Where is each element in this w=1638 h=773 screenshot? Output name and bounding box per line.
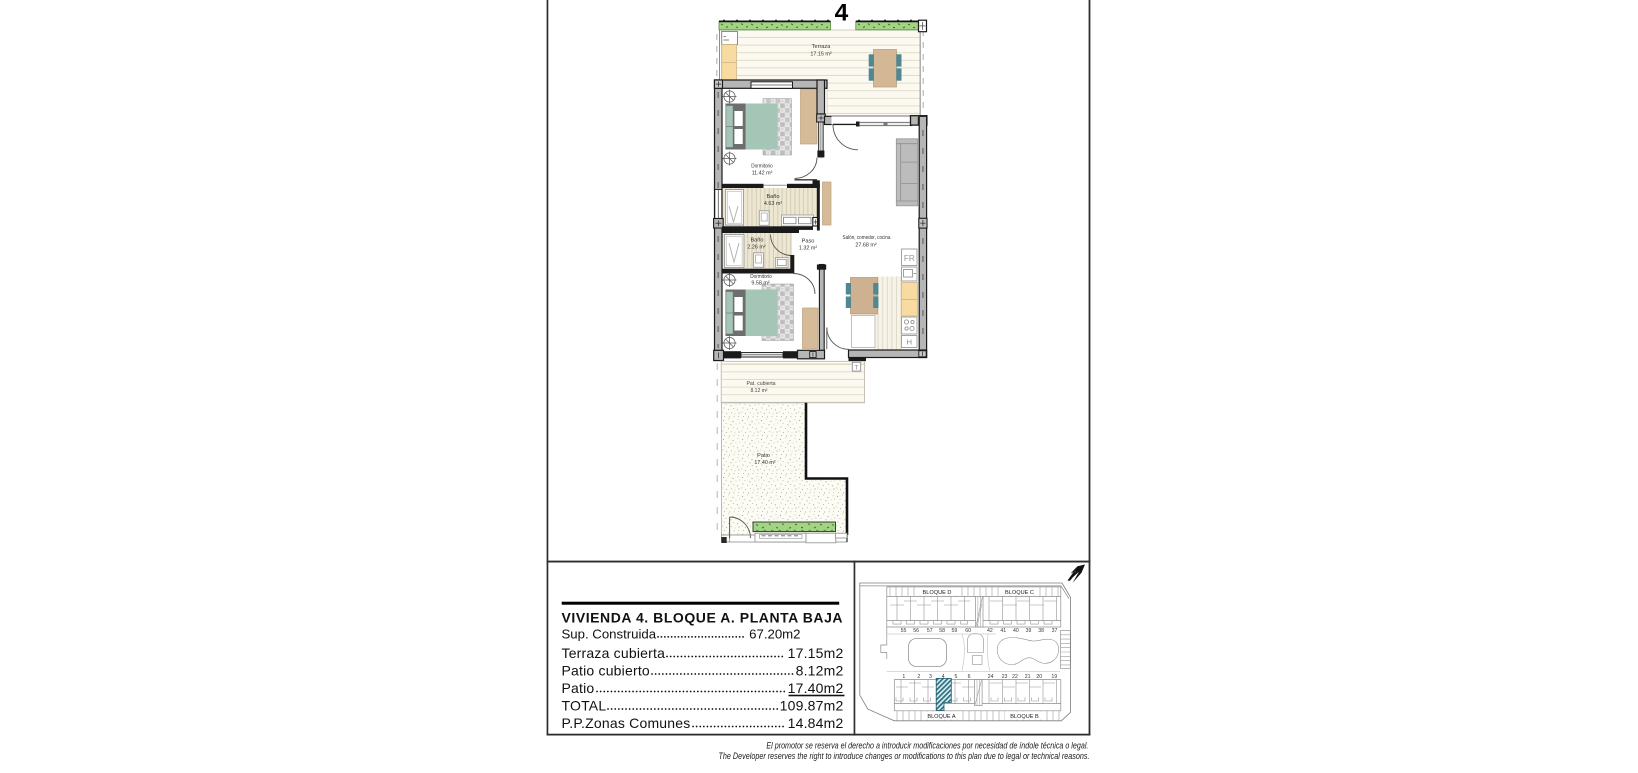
svg-text:Paso: Paso <box>802 239 815 245</box>
svg-text:Salón, comedor, cocina: Salón, comedor, cocina <box>843 235 892 241</box>
svg-text:1: 1 <box>902 674 905 680</box>
svg-text:8.12 m²: 8.12 m² <box>751 388 768 394</box>
svg-text:59: 59 <box>952 628 958 634</box>
svg-text:4: 4 <box>835 0 849 27</box>
svg-text:55: 55 <box>901 628 907 634</box>
svg-text:4.63 m²: 4.63 m² <box>764 201 782 207</box>
svg-text:BLOQUE A: BLOQUE A <box>927 714 956 720</box>
svg-text:6: 6 <box>968 674 971 680</box>
svg-text:58: 58 <box>939 628 945 634</box>
svg-text:Patio: Patio <box>757 453 770 459</box>
svg-text:BLOQUE C: BLOQUE C <box>1005 590 1034 596</box>
svg-text:42: 42 <box>987 628 993 634</box>
svg-text:27.68 m²: 27.68 m² <box>855 243 876 249</box>
svg-text:21: 21 <box>1025 674 1031 680</box>
svg-text:P.P.Zonas Comunes: P.P.Zonas Comunes <box>562 715 691 731</box>
svg-text:2: 2 <box>917 674 920 680</box>
svg-text:9.58 m²: 9.58 m² <box>751 281 769 287</box>
svg-text:20: 20 <box>1036 674 1042 680</box>
svg-text:17.15 m²: 17.15 m² <box>810 52 831 58</box>
svg-text:2.26 m²: 2.26 m² <box>747 245 765 251</box>
svg-text:5: 5 <box>954 674 957 680</box>
svg-text:Terraza cubierta: Terraza cubierta <box>562 645 666 661</box>
svg-text:40: 40 <box>1013 628 1019 634</box>
svg-text:22: 22 <box>1012 674 1018 680</box>
svg-text:TOTAL: TOTAL <box>562 698 607 714</box>
svg-text:Pat. cubierta: Pat. cubierta <box>746 381 775 387</box>
svg-text:109.87m2: 109.87m2 <box>780 698 844 714</box>
svg-text:The Developer reserves the rig: The Developer reserves the right to intr… <box>719 751 1090 762</box>
svg-text:Dormitorio: Dormitorio <box>750 274 772 280</box>
svg-text:60: 60 <box>965 628 971 634</box>
svg-text:Patio cubierto: Patio cubierto <box>562 663 650 679</box>
svg-text:17.15m2: 17.15m2 <box>788 645 844 661</box>
svg-text:39: 39 <box>1026 628 1032 634</box>
svg-text:24: 24 <box>988 674 994 680</box>
svg-text:38: 38 <box>1038 628 1044 634</box>
svg-text:Terraza: Terraza <box>812 44 832 50</box>
svg-text:14.84m2: 14.84m2 <box>788 715 844 731</box>
svg-text:Sup. Construida: Sup. Construida <box>562 626 657 641</box>
svg-text:17.40m2: 17.40m2 <box>788 680 844 696</box>
svg-text:17.40 m²: 17.40 m² <box>754 460 775 466</box>
svg-text:23: 23 <box>1002 674 1008 680</box>
svg-text:8.12m2: 8.12m2 <box>796 663 844 679</box>
svg-text:BLOQUE D: BLOQUE D <box>923 590 952 596</box>
svg-text:BLOQUE B: BLOQUE B <box>1010 714 1039 720</box>
svg-text:67.20m2: 67.20m2 <box>749 626 800 641</box>
svg-text:Baño: Baño <box>750 238 763 244</box>
svg-text:19: 19 <box>1051 674 1057 680</box>
svg-text:Baño: Baño <box>766 194 779 200</box>
svg-text:El promotor se reserva el dere: El promotor se reserva el derecho a intr… <box>766 740 1088 751</box>
svg-text:56: 56 <box>913 628 919 634</box>
svg-text:57: 57 <box>927 628 933 634</box>
svg-text:VIVIENDA 4. BLOQUE A. PLANTA B: VIVIENDA 4. BLOQUE A. PLANTA BAJA <box>562 610 844 626</box>
svg-text:37: 37 <box>1052 628 1058 634</box>
svg-text:FR: FR <box>904 254 915 263</box>
svg-text:Patio: Patio <box>562 680 595 696</box>
svg-text:H: H <box>907 338 912 347</box>
svg-text:3: 3 <box>929 674 932 680</box>
svg-text:T: T <box>855 365 859 372</box>
svg-text:Dormitorio: Dormitorio <box>751 164 773 170</box>
svg-text:41: 41 <box>1000 628 1006 634</box>
svg-text:11.42 m²: 11.42 m² <box>752 171 773 177</box>
svg-text:1.32 m²: 1.32 m² <box>799 246 817 252</box>
